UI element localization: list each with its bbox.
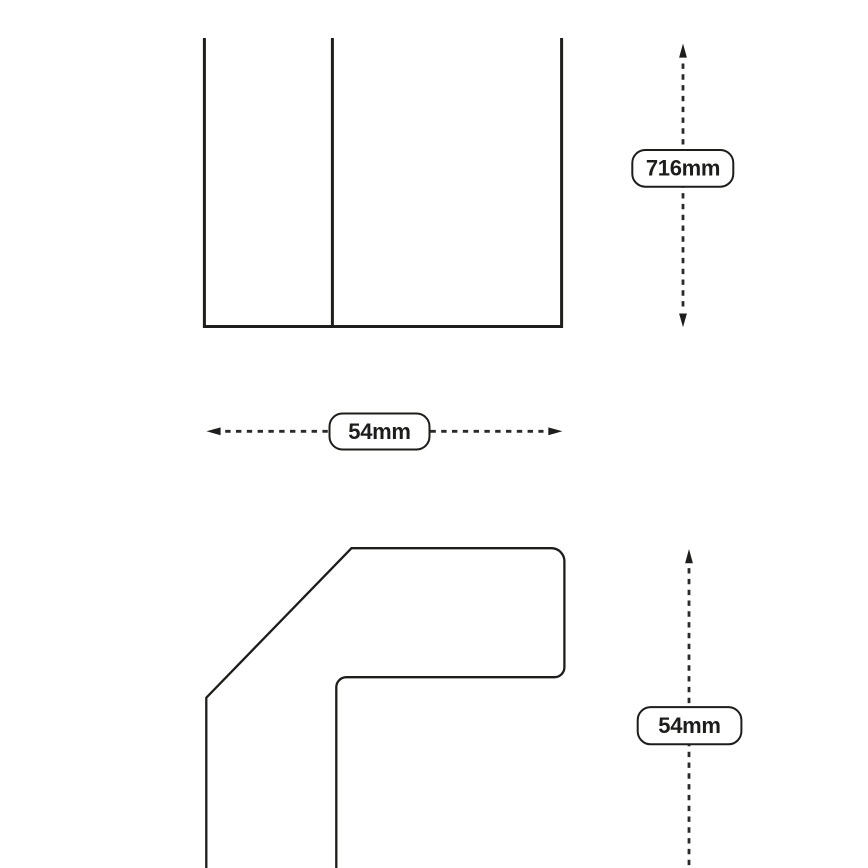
svg-text:54mm: 54mm (658, 713, 720, 738)
svg-text:716mm: 716mm (646, 156, 720, 181)
svg-text:54mm: 54mm (348, 419, 410, 444)
